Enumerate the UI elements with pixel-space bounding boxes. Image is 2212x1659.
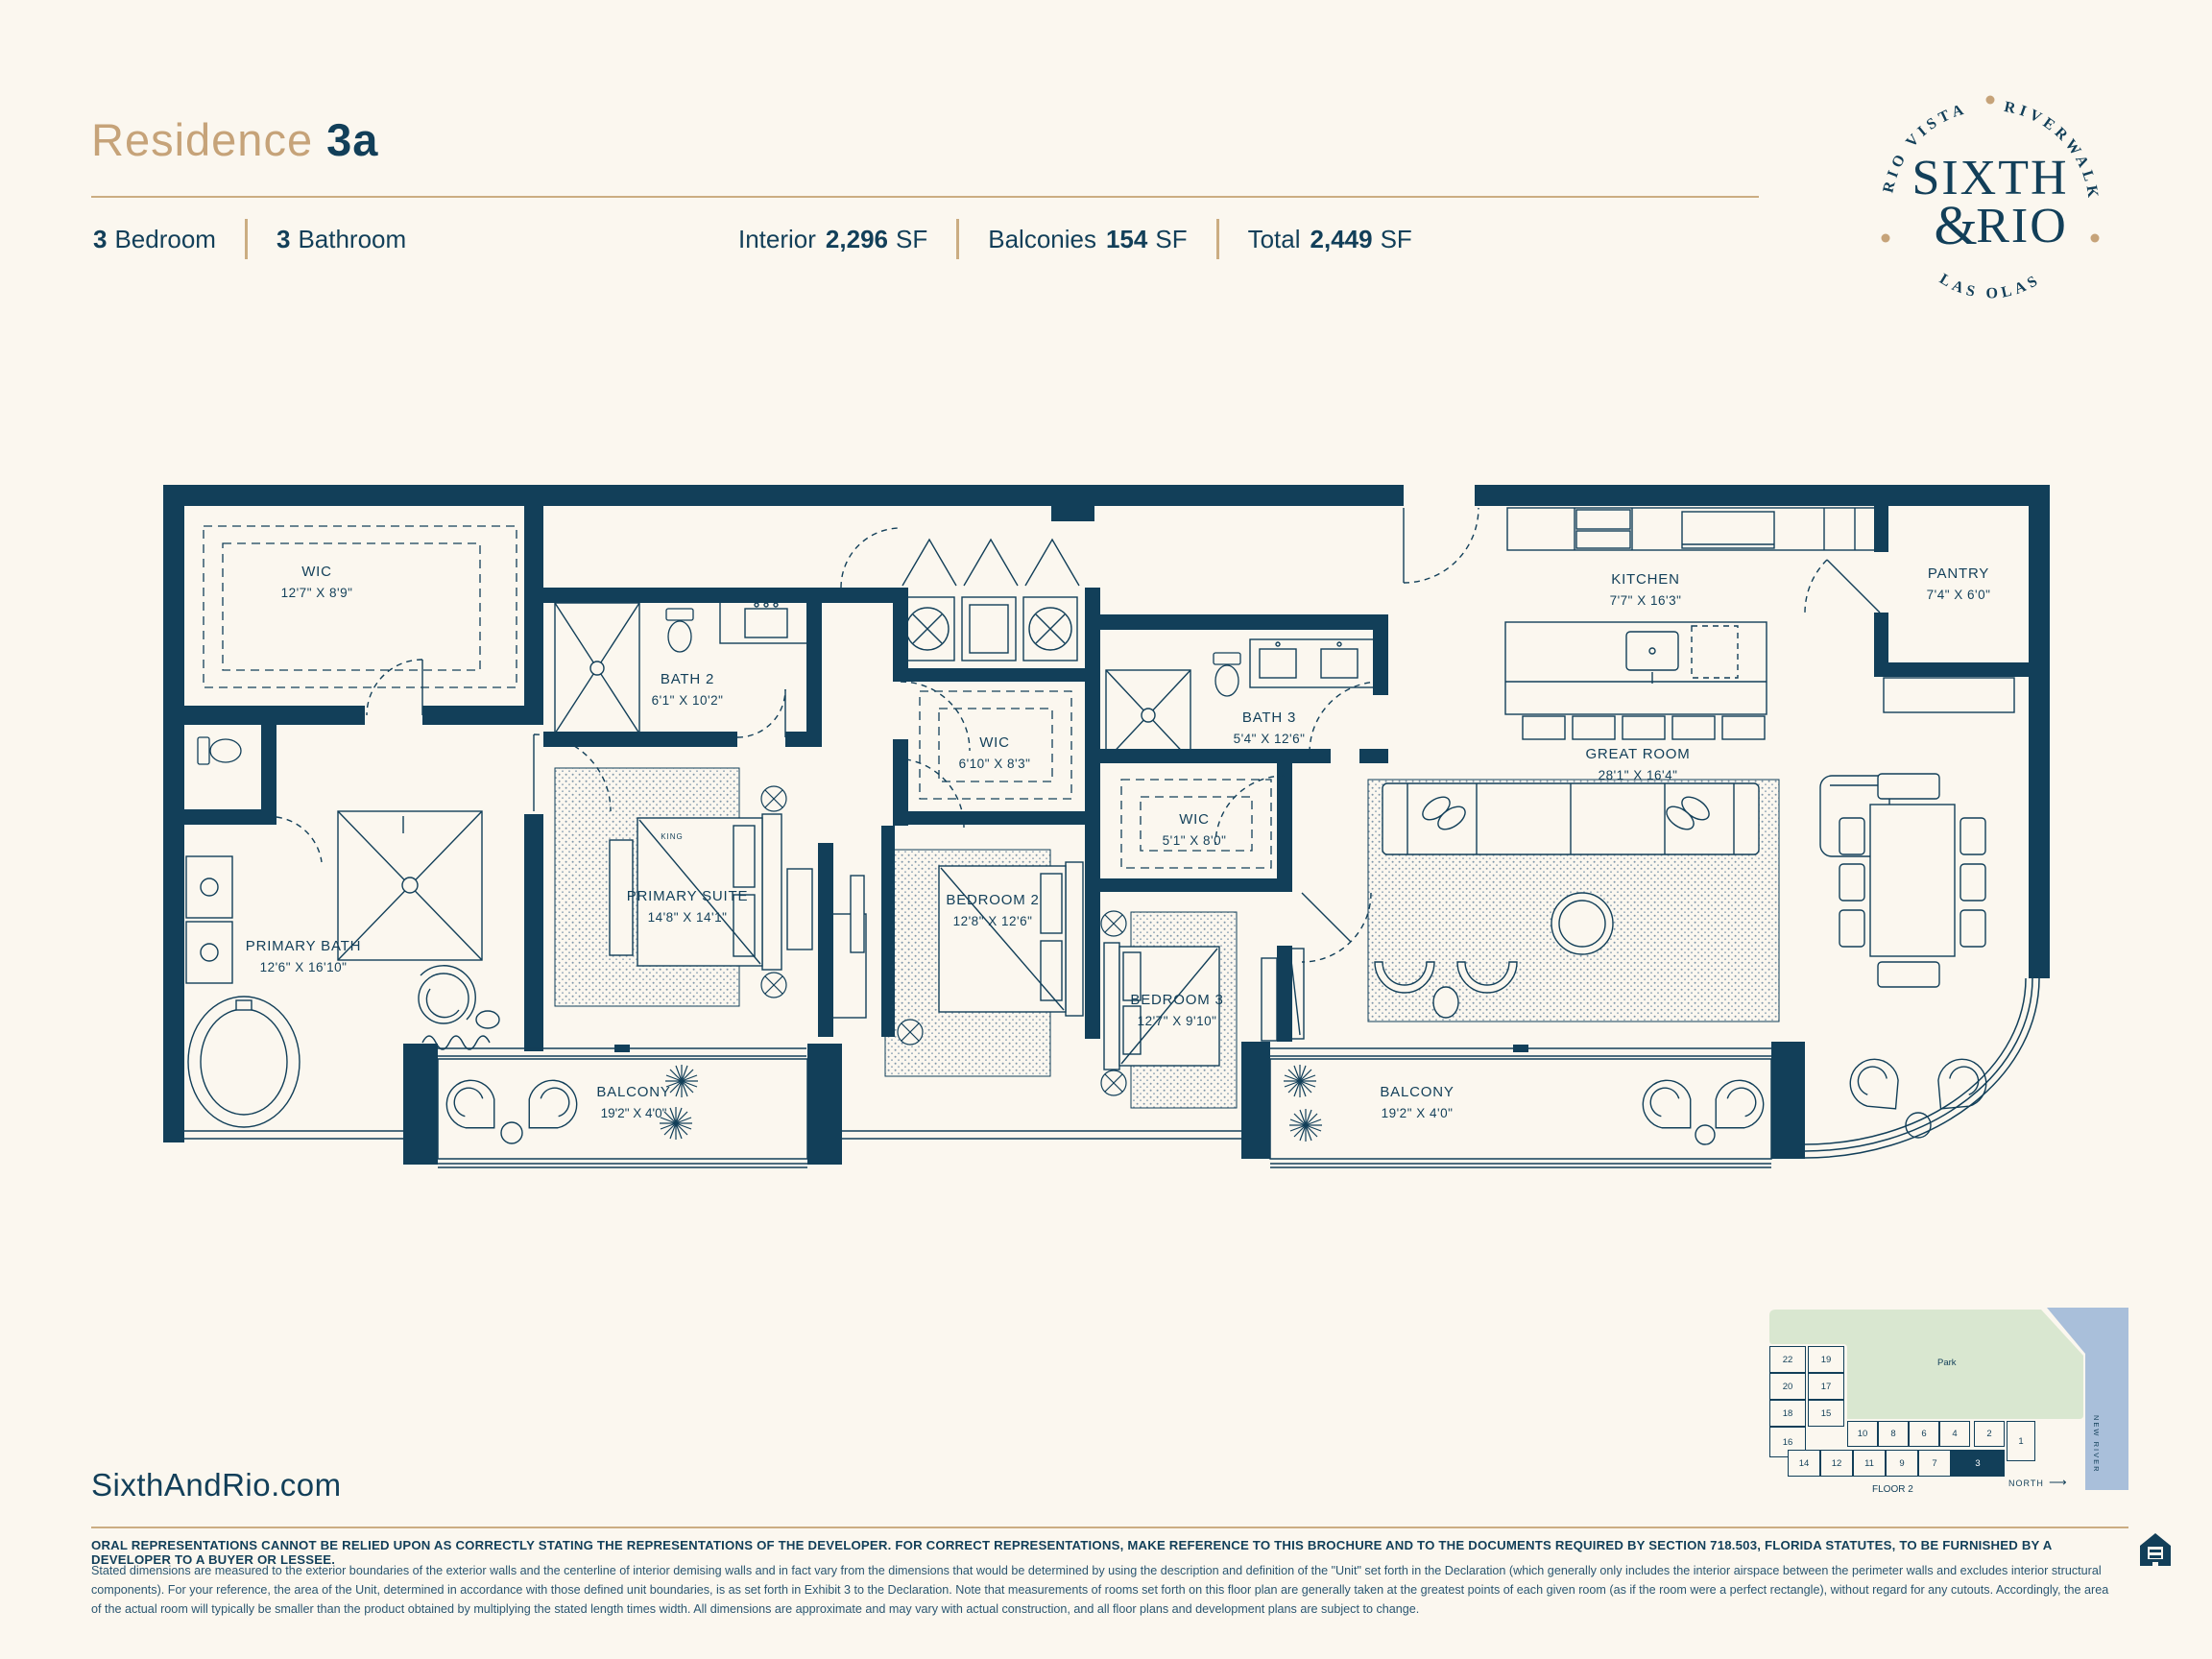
svg-text:14'8" X 14'1": 14'8" X 14'1"	[648, 910, 728, 925]
logo-dot-right	[2091, 234, 2100, 243]
logo-word-rio: RIO	[1976, 199, 2068, 253]
svg-text:LAS OLAS: LAS OLAS	[1936, 271, 2044, 301]
keyplan-park-label: Park	[1937, 1358, 1957, 1368]
page-title: Residence 3a	[91, 113, 378, 166]
room-label-wic-2: WIC	[979, 734, 1010, 751]
website-url: SixthAndRio.com	[91, 1467, 342, 1503]
svg-text:5'1" X 8'0": 5'1" X 8'0"	[1163, 833, 1227, 848]
title-divider-line	[91, 196, 1759, 198]
logo-arc-bottom: LAS OLAS	[1936, 271, 2044, 301]
stat-divider	[956, 219, 959, 259]
keyplan-unit-8: 8	[1878, 1421, 1909, 1447]
stat-divider	[1216, 219, 1219, 259]
sixth-and-rio-logo: RIO VISTA RIVERWALK LAS OLAS SIXTH & RIO	[1861, 67, 2120, 326]
bathroom-label: Bathroom	[298, 225, 406, 254]
keyplan-unit-17: 17	[1808, 1373, 1844, 1400]
svg-text:5'4" X 12'6": 5'4" X 12'6"	[1234, 732, 1306, 746]
bathroom-count: 3	[276, 225, 290, 254]
total-label: Total	[1248, 225, 1301, 254]
room-label-primary-bath: PRIMARY BATH	[246, 938, 361, 954]
keyplan-unit-9: 9	[1886, 1450, 1918, 1477]
floor-plan: WIC 12'7" X 8'9" PRIMARY BATH 12'6" X 16…	[144, 461, 2064, 1190]
room-label-wic-primary: WIC	[301, 564, 332, 580]
logo-ampersand: &	[1934, 194, 1979, 256]
balconies-label: Balconies	[988, 225, 1096, 254]
svg-text:19'2" X 4'0": 19'2" X 4'0"	[601, 1106, 667, 1120]
room-label-wic-3: WIC	[1179, 811, 1210, 828]
keyplan-unit-7: 7	[1918, 1450, 1951, 1477]
interior-label: Interior	[738, 225, 816, 254]
room-label-bedroom-2: BEDROOM 2	[946, 892, 1039, 908]
equal-housing-icon	[2139, 1532, 2172, 1567]
room-label-great-room: GREAT ROOM	[1585, 746, 1690, 762]
room-label-pantry: PANTRY	[1928, 565, 1989, 582]
svg-text:19'2" X 4'0": 19'2" X 4'0"	[1382, 1106, 1454, 1120]
keyplan-floor-label: FLOOR 2	[1872, 1484, 1913, 1495]
north-arrow-icon: ⟶	[2049, 1475, 2067, 1490]
keyplan-unit-3-highlighted: 3	[1951, 1450, 2005, 1477]
keyplan-unit-18: 18	[1769, 1400, 1806, 1427]
room-label-primary-suite: PRIMARY SUITE	[627, 888, 749, 904]
brochure-page: Residence 3a 3 Bedroom 3 Bathroom Interi…	[0, 0, 2212, 1659]
keyplan-unit-10: 10	[1847, 1421, 1878, 1447]
svg-text:28'1" X 16'4": 28'1" X 16'4"	[1599, 768, 1678, 782]
logo-dot-left	[1882, 234, 1890, 243]
bed-size-label: KING	[661, 832, 684, 841]
svg-text:7'7" X 16'3": 7'7" X 16'3"	[1610, 593, 1682, 608]
keyplan-river-label: NEW RIVER	[2092, 1415, 2101, 1474]
room-label-kitchen: KITCHEN	[1611, 571, 1679, 588]
keyplan-north-label: NORTH	[2008, 1479, 2044, 1488]
svg-text:12'7" X 9'10": 12'7" X 9'10"	[1138, 1014, 1217, 1028]
keyplan-unit-6: 6	[1909, 1421, 1939, 1447]
logo-dot-top	[1986, 96, 1995, 105]
keyplan-unit-15: 15	[1808, 1400, 1844, 1427]
title-unit-number: 3a	[326, 114, 378, 165]
keyplan-unit-4: 4	[1939, 1421, 1970, 1447]
svg-text:6'10" X 8'3": 6'10" X 8'3"	[959, 757, 1031, 771]
svg-text:6'1" X 10'2": 6'1" X 10'2"	[652, 693, 724, 708]
keyplan: Park NEW RIVER 22 20 18 16 19 17 15 10 8…	[1767, 1302, 2210, 1505]
balconies-value: 154	[1106, 225, 1147, 254]
keyplan-unit-22: 22	[1769, 1346, 1806, 1373]
room-label-balcony-1: BALCONY	[596, 1084, 670, 1100]
svg-text:12'7" X 8'9": 12'7" X 8'9"	[281, 586, 353, 600]
bedroom-label: Bedroom	[114, 225, 216, 254]
room-label-bath-3: BATH 3	[1242, 709, 1296, 726]
total-value: 2,449	[1310, 225, 1373, 254]
footer-divider-line	[91, 1527, 2128, 1528]
title-prefix: Residence	[91, 114, 313, 165]
room-label-balcony-2: BALCONY	[1380, 1084, 1454, 1100]
keyplan-unit-19: 19	[1808, 1346, 1844, 1373]
room-label-bath-2: BATH 2	[661, 671, 714, 687]
keyplan-unit-14: 14	[1788, 1450, 1820, 1477]
keyplan-unit-11: 11	[1853, 1450, 1886, 1477]
interior-value: 2,296	[826, 225, 888, 254]
keyplan-unit-12: 12	[1820, 1450, 1853, 1477]
balconies-unit: SF	[1155, 225, 1187, 254]
disclaimer-body: Stated dimensions are measured to the ex…	[91, 1561, 2122, 1619]
keyplan-unit-20: 20	[1769, 1373, 1806, 1400]
interior-unit: SF	[896, 225, 927, 254]
svg-text:12'6" X 16'10": 12'6" X 16'10"	[260, 960, 348, 974]
bedroom-count: 3	[93, 225, 107, 254]
bed-bath-stats: 3 Bedroom 3 Bathroom	[93, 219, 406, 259]
room-label-bedroom-3: BEDROOM 3	[1130, 992, 1223, 1008]
area-stats: Interior 2,296 SF Balconies 154 SF Total…	[738, 219, 1412, 259]
total-unit: SF	[1381, 225, 1412, 254]
keyplan-unit-2: 2	[1974, 1421, 2005, 1447]
stat-divider	[245, 219, 248, 259]
keyplan-unit-1: 1	[2007, 1421, 2035, 1461]
svg-text:12'8" X 12'6": 12'8" X 12'6"	[953, 914, 1033, 928]
svg-text:7'4" X 6'0": 7'4" X 6'0"	[1927, 588, 1991, 602]
